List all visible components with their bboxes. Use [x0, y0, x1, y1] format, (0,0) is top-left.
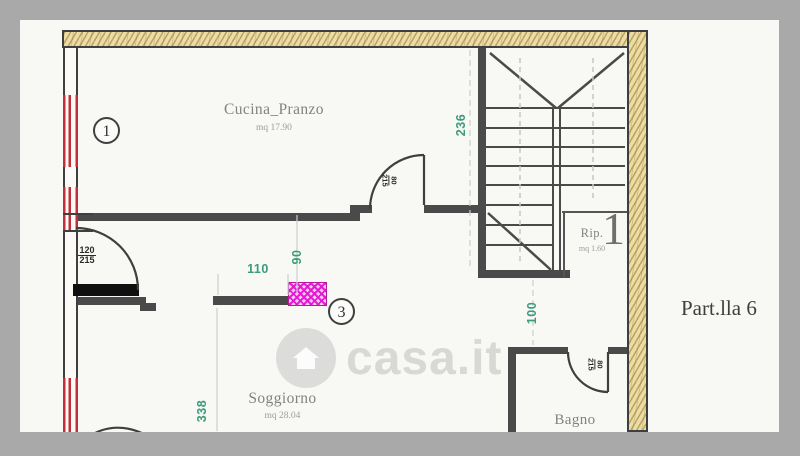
bagno-door-width: 80 [595, 359, 604, 369]
outer-wall-top [62, 30, 648, 48]
wall-tick-1 [63, 213, 93, 215]
parcel-annotation: Part.lla 6 [681, 296, 757, 321]
frame-top [0, 0, 800, 20]
bagno-left-wall [508, 354, 516, 432]
circled-number-1: 1 [93, 117, 120, 144]
kitchen-wall-b1 [356, 205, 372, 213]
bagno-door-size: 80 215 [587, 349, 604, 379]
circled-number-3: 3 [328, 298, 355, 325]
room-label-soggiorno: Soggiorno [210, 390, 355, 408]
stairwell-left-wall [478, 48, 486, 278]
kitchen-door-size: 80 215 [381, 165, 398, 195]
room-area-soggiorno: mq 28.04 [210, 411, 355, 421]
dimension-236: 236 [454, 105, 468, 145]
bagno-top-wall-left [508, 347, 568, 354]
kitchen-wall-a [78, 213, 354, 221]
dimension-100: 100 [525, 293, 539, 333]
watermark-text: casa.it [346, 331, 502, 386]
window-red-lower [63, 378, 78, 432]
kitchen-wall-b2 [424, 205, 478, 213]
stairwell-bottom-wall [478, 270, 570, 278]
entry-door-height: 215 [79, 256, 94, 265]
hall-wall [78, 297, 146, 305]
room-area-cucina: mq 17.90 [200, 123, 348, 133]
watermark-house-icon [276, 328, 336, 388]
dimension-338: 338 [195, 391, 209, 431]
kitchen-door-height: 215 [381, 174, 389, 187]
entry-door-size: 120 215 [72, 246, 102, 266]
watermark: casa.it [276, 328, 502, 388]
dimension-110: 110 [228, 262, 288, 276]
frame-left [0, 0, 20, 456]
kitchen-door-width: 80 [389, 175, 398, 185]
house-icon [290, 342, 322, 374]
outer-wall-right [627, 30, 648, 432]
window-red-middle [63, 187, 78, 232]
wall-tick-2 [63, 230, 93, 232]
frame-bottom [0, 432, 800, 456]
room-area-rip: mq 1.60 [566, 244, 618, 253]
dimension-90: 90 [290, 237, 304, 277]
entry-door-leaf [73, 284, 139, 296]
new-wall-magenta [288, 282, 327, 306]
frame-right [779, 0, 800, 456]
bagno-door-height: 215 [587, 358, 595, 371]
partition-wall [213, 296, 288, 305]
room-label-cucina: Cucina_Pranzo [200, 101, 348, 119]
hall-wall-jog [140, 303, 156, 311]
room-label-rip: Rip. [570, 226, 614, 241]
window-red-upper [63, 95, 78, 167]
room-label-bagno: Bagno [530, 412, 620, 429]
floorplan-photo: Cucina_Pranzo mq 17.90 Soggiorno mq 28.0… [0, 0, 800, 456]
bagno-top-wall-right [608, 347, 627, 354]
